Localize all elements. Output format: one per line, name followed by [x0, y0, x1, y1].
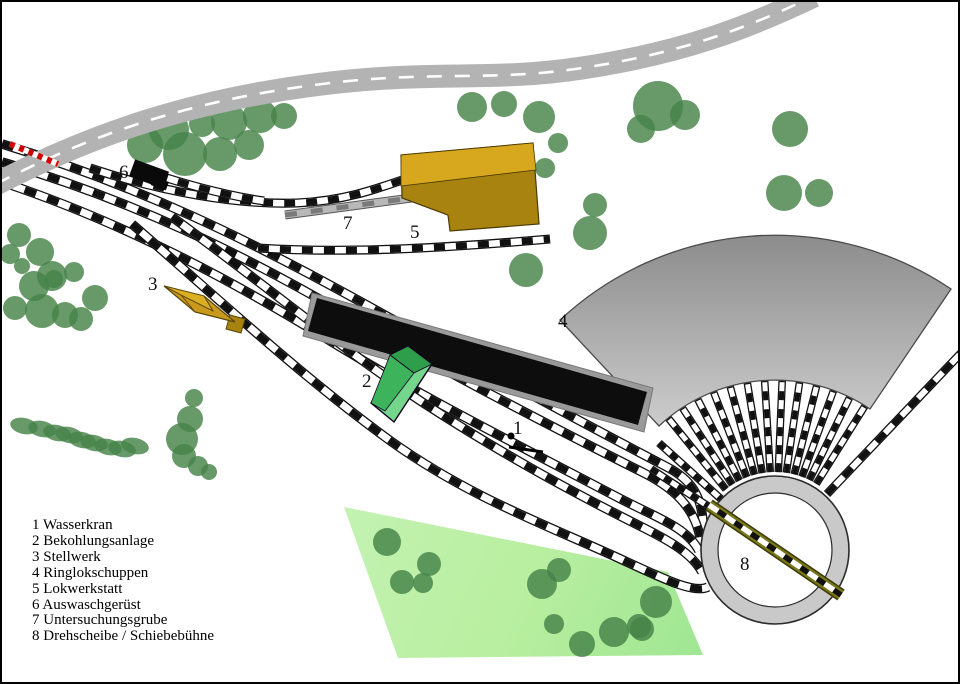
tree [599, 617, 629, 647]
tree [509, 253, 543, 287]
tree [772, 111, 808, 147]
label-stellwerk: 3 [148, 274, 158, 295]
tree [544, 614, 564, 634]
tree [390, 570, 414, 594]
tree [82, 285, 108, 311]
tree [670, 100, 700, 130]
tree [7, 223, 31, 247]
label-untersuchungsgrube: 7 [343, 213, 353, 234]
tree [203, 137, 237, 171]
tree [373, 528, 401, 556]
legend-item-3: 3 Stellwerk [32, 550, 214, 566]
tree [417, 552, 441, 576]
label-lokwerkstatt: 5 [410, 222, 420, 243]
turntable [701, 476, 849, 624]
tree [535, 158, 555, 178]
legend-item-4: 4 Ringlokschuppen [32, 566, 214, 582]
tree [3, 296, 27, 320]
tree [457, 92, 487, 122]
legend-item-8: 8 Drehscheibe / Schiebebühne [32, 629, 214, 645]
tree [548, 133, 568, 153]
tree [573, 216, 607, 250]
legend-item-6: 6 Auswaschgerüst [32, 598, 214, 614]
tree [569, 631, 595, 657]
tree [491, 91, 517, 117]
tree [627, 614, 651, 638]
legend-item-7: 7 Untersuchungsgrube [32, 613, 214, 629]
tree [201, 464, 217, 480]
legend-item-1: 1 Wasserkran [32, 518, 214, 534]
tree [523, 101, 555, 133]
tree [583, 193, 607, 217]
label-bekohlungsanlage: 2 [362, 371, 372, 392]
label-auswaschgeruest: 6 [119, 162, 129, 183]
tree [413, 573, 433, 593]
label-ringlokschuppen: 4 [558, 311, 568, 332]
tree [766, 175, 802, 211]
railway-depot-diagram: 1 2 3 4 5 6 7 8 1 Wasserkran 2 Bekohlung… [0, 0, 960, 684]
tree [14, 258, 30, 274]
legend: 1 Wasserkran 2 Bekohlungsanlage 3 Stellw… [32, 518, 214, 645]
tree [547, 558, 571, 582]
tree [234, 130, 264, 160]
tree [45, 270, 63, 288]
tree [163, 132, 207, 176]
tree [271, 103, 297, 129]
legend-item-5: 5 Lokwerkstatt [32, 582, 214, 598]
tree [69, 307, 93, 331]
label-drehscheibe: 8 [740, 554, 750, 575]
tree [64, 262, 84, 282]
tree [185, 389, 203, 407]
tree [640, 586, 672, 618]
tree [627, 115, 655, 143]
label-wasserkran: 1 [513, 418, 523, 439]
tree [805, 179, 833, 207]
legend-item-2: 2 Bekohlungsanlage [32, 534, 214, 550]
